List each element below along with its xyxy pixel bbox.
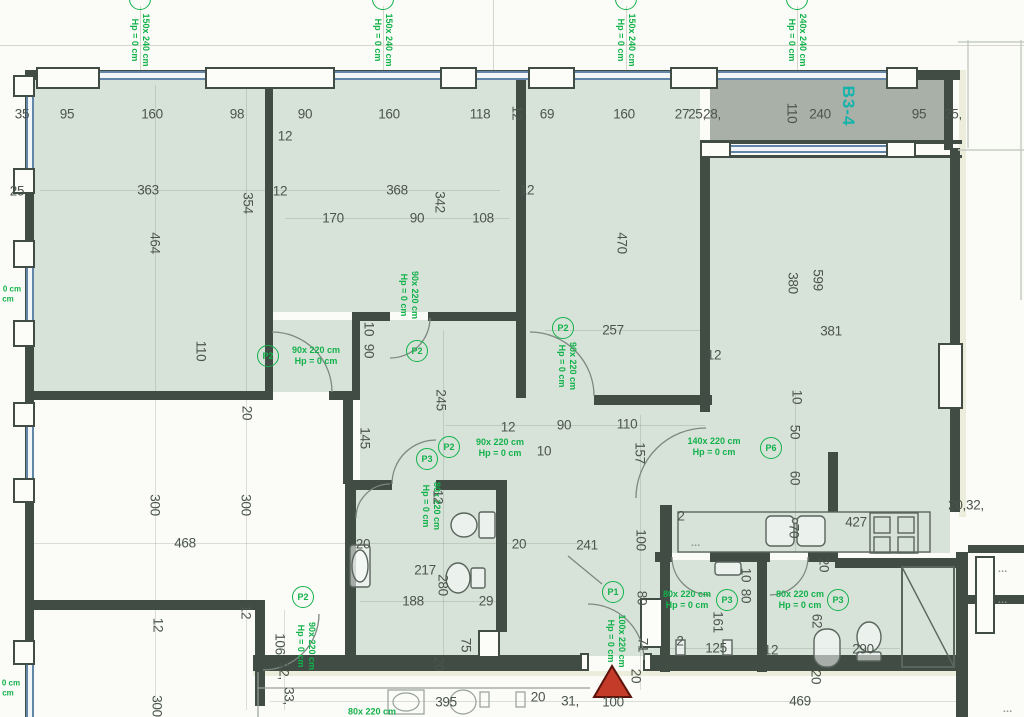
dimension-label: 118 [470,107,491,122]
door-label-circle: P2 [438,436,460,458]
dimension-label: 100 [602,695,624,710]
dimension-label: 12 [501,420,515,435]
dimension-label: 20 [809,670,824,684]
dimension-label: 20 [512,537,526,552]
wall-outer-band [959,70,966,517]
edge-window-label: cm [2,689,14,698]
dimension-label: 100 [634,529,649,551]
dimension-label: 10 [790,390,805,404]
hatch-mark: ▪▪▪ [998,600,1007,606]
dimension-label: 342 [433,191,448,213]
dimension-label: 12 [151,618,166,632]
dimension-label: 240 [809,107,831,122]
window-label: 150x 240 cmHp = 0 cm [615,13,637,66]
dimension-label: 2 [676,634,683,649]
dimension-label: 33, [282,687,297,705]
door-frame [580,653,589,671]
door-label-circle: P2 [257,345,279,367]
dimension-label: 27 [675,107,689,122]
dimension-label: 20 [531,690,545,705]
guide-line [493,0,494,70]
dimension-label: 12 [239,605,254,619]
room-fill-corridor [507,480,660,656]
window-sill [13,402,35,427]
wall-segment-neighbor-right-h1 [968,545,1024,553]
label-line: Hp = 0 cm [786,13,797,66]
door-label: 90x 220 cmHp = 0 cm [476,437,524,459]
label-line: Hp = 0 cm [615,13,626,66]
dimension-label: 20 [356,537,370,552]
edge-window-label: 0 cm [2,679,20,688]
window-label-circle [129,0,151,10]
window-sill [13,240,35,268]
window-sill [886,67,918,89]
door-label-circle: P6 [760,437,782,459]
dimension-label: 160 [613,107,635,122]
wall-segment-living-west [700,148,710,412]
dimension-label: 90 [557,418,571,433]
dimension-label: 170 [322,211,344,226]
label-line: Hp = 0 cm [420,482,431,530]
wall-segment-bottom-right [644,655,962,671]
label-line: 80x 220 cm [776,589,824,600]
door-label: 90x 220 cmHp = 0 cm [556,342,578,390]
dimension-label: 10 [362,322,377,336]
neighbor-sink-bowl [393,693,419,711]
dimension-label: 10 [739,568,754,582]
door-label: 90x 220 cmHp = 0 cm [398,271,420,319]
door-label: 80x 220 cmHp = 0 cm [663,589,711,611]
dimension-label: 161 [711,611,726,633]
window-glazing [26,427,34,478]
label-line: Hp = 0 cm [605,614,616,667]
label-line: 150x 240 cm [383,13,394,66]
door-frame [643,653,652,671]
window-sill [938,343,963,409]
dimension-label: 469 [789,694,811,709]
wall-segment-bath-east [496,480,507,632]
door-label-circle: P2 [292,586,314,608]
window-label: 240x 240 cmHp = 0 cm [786,13,808,66]
dimension-label: 31, [561,694,579,709]
window-sill [13,478,35,503]
dimension-label: 468 [174,536,196,551]
wall-segment-bedroom2-south-b [428,312,522,321]
dimension-label: 95 [60,107,74,122]
label-line: Hp = 0 cm [687,447,740,458]
dimension-label: 25, [944,107,962,122]
label-line: Hp = 0 cm [398,271,409,319]
dimension-label: 245 [434,389,449,411]
wall-segment-kitchen-divider [828,452,838,512]
dimension-label: 217 [414,563,436,578]
dimension-label: 160 [141,107,163,122]
window-glazing [731,145,886,153]
label-line: 100x 220 cm [616,614,627,667]
dimension-label: 80 [739,589,754,603]
wall-segment-terrace-south-bottom [700,155,962,158]
door-label-circle: P3 [416,448,438,470]
window-sill [670,67,718,89]
door-label: 140x 220 cmHp = 0 cm [687,436,740,458]
dimension-label: 90 [298,107,312,122]
guide-line [0,45,1024,46]
dimension-label: 290 [852,642,874,657]
window-sill [886,141,916,158]
label-line: 240x 240 cm [797,13,808,66]
label-line: 90x 220 cm [567,342,578,390]
dimension-label: 381 [820,324,842,339]
dimension-label: 12 [520,183,534,198]
dimension-label: 257 [602,323,624,338]
dimension-label: 157 [633,442,648,464]
dimension-label: 90 [410,211,424,226]
label-line: Hp = 0 cm [129,13,140,66]
wall-segment-hall-connector [352,312,360,400]
window-label-circle [786,0,808,10]
dimension-label: 363 [137,183,159,198]
dimension-label: 12 [707,348,721,363]
window-glazing [477,71,528,80]
dimension-label: 70 [787,524,802,538]
dimension-label: 25 [10,184,24,199]
dimension-label: 380 [786,272,801,294]
dimension-label: 62 [810,614,825,628]
neighbor-column [975,556,995,634]
dimension-label: 20 [629,669,644,683]
window-label-circle [615,0,637,10]
dimension-label: 12 [431,490,446,504]
dimension-label: 20 [240,406,255,420]
dimension-label: 35 [15,107,29,122]
label-line: 90x 220 cm [306,622,317,670]
dimension-label: 599 [811,269,826,291]
shaft-box [478,630,500,658]
dimension-label: 20 [432,657,447,671]
window-glazing [26,268,34,320]
window-sill [13,640,35,665]
edge-window-label: 0 cm [3,285,21,294]
dimension-label: 90 [362,344,377,358]
hatch-mark: ▪▪▪ [691,543,700,549]
door-label-circle: P1 [602,581,624,603]
dimension-label: 110 [785,103,800,124]
dimension-label: 60 [788,471,803,485]
dimension-label: 20 [817,558,832,572]
window-sill [440,67,477,89]
dimension-label: 69 [540,107,554,122]
window-glazing [26,665,34,717]
dimension-label: 300 [150,695,165,717]
door-label: 90x 220 cmHp = 0 cm [295,622,317,670]
wall-outer-band [253,671,962,676]
dimension-label: 98 [230,107,244,122]
dimension-label: 300 [148,494,163,516]
neighbor-door-frame [516,692,525,707]
dimension-label: 470 [615,232,630,254]
edge-window-label: cm [2,295,14,304]
dimension-label: 354 [241,192,256,214]
wall-segment-white-room-vert [255,610,265,706]
door-label-circle: P3 [716,589,738,611]
wall-segment-bedroom3-west [516,76,526,398]
label-line: Hp = 0 cm [292,356,340,367]
label-line: Hp = 0 cm [295,622,306,670]
label-line: 80x 220 cm [348,707,396,717]
wall-segment-bedroom1-south-a [25,391,268,400]
door-label: 80x 220 cm [348,707,396,717]
wall-segment-kitchen-west [660,505,672,557]
dimension-label: 241 [576,538,598,553]
dimension-label: 300 [239,494,254,516]
label-line: 140x 220 cm [687,436,740,447]
dimension-label: 12 [510,106,525,120]
door-label-circle: P2 [406,340,428,362]
window-label-circle [372,0,394,10]
wall-segment-bath-west [345,480,356,658]
wall-segment-shower-north [835,558,957,568]
dimension-label: 110 [617,417,638,432]
wall-segment-bedroom3-south [594,395,712,405]
neighbor-door-frame [480,692,489,707]
room-fill-bedroom3 [526,78,700,398]
label-line: Hp = 0 cm [476,448,524,459]
dimension-label: 160 [378,107,400,122]
hatch-mark: ▪▪▪ [1003,709,1012,715]
dimension-label: 29 [479,594,493,609]
label-line: Hp = 0 cm [776,600,824,611]
dimension-label: 106 [273,633,288,655]
window-sill [205,67,335,89]
window-sill [13,320,35,347]
dimension-label: 10 [537,444,551,459]
dimension-label: 145 [358,427,373,449]
leader-line [30,543,595,544]
dimension-label: 110 [194,341,209,362]
dimension-label: 108 [472,211,494,226]
dimension-label: 188 [402,594,424,609]
door-label: 80x 220 cmHp = 0 cm [776,589,824,611]
window-glazing [718,71,886,80]
wall-segment-terrace-south-top [700,140,962,144]
door-label-circle: P3 [827,589,849,611]
label-line: 150x 240 cm [140,13,151,66]
dimension-label: 80 [635,591,650,605]
label-line: 150x 240 cm [626,13,637,66]
dimension-label: 464 [148,232,163,254]
wall-segment-white-rooms-divider [28,600,265,610]
dimension-label: 12 [278,129,292,144]
door-label: 100x 220 cmHp = 0 cm [605,614,627,667]
label-line: 90x 220 cm [409,271,420,319]
window-label: 150x 240 cmHp = 0 cm [129,13,151,66]
room-fill-kitchen [660,512,950,553]
label-line: 80x 220 cm [663,589,711,600]
window-glazing [100,71,205,80]
dimension-label: 395 [435,695,457,710]
window-sill [13,75,35,97]
window-sill [36,67,100,89]
window-glazing [335,71,440,80]
dimension-label: 125 [705,641,727,656]
label-line: 90x 220 cm [476,437,524,448]
label-line: 90x 220 cm [292,345,340,356]
window-sill [528,67,575,89]
dimension-label: 12 [273,184,287,199]
dimension-label: 2 [677,509,684,524]
label-line: Hp = 0 cm [663,600,711,611]
dimension-label: 280 [436,574,451,596]
window-sill [700,141,731,158]
dimension-label: 12 [764,643,778,658]
hatch-mark: ▪▪▪ [998,569,1007,575]
dimension-label: 75 [459,638,474,652]
label-line: Hp = 0 cm [372,13,383,66]
wall-segment-white-room-east [343,396,353,484]
adjacent-unit-lines [958,40,1024,300]
dimension-label: 12, [277,662,292,680]
dimension-label: 50 [788,425,803,439]
unit-label: B3-4 [838,86,858,127]
wall-segment-neighbor-right-vert [956,552,968,717]
label-line: Hp = 0 cm [556,342,567,390]
door-label: 90x 220 cmHp = 0 cm [292,345,340,367]
window-label: 150x 240 cmHp = 0 cm [372,13,394,66]
leader-line [445,425,705,426]
dimension-label: 20,32, [948,498,984,513]
wall-segment-right [950,148,960,512]
floor-plan: B3-4 150x 240 cmHp = 0 cm150x 240 cmHp =… [0,0,1024,717]
door-label-circle: P2 [552,317,574,339]
dimension-label: 28, [703,107,721,122]
dimension-label: 95 [912,107,926,122]
dimension-label: 427 [845,515,867,530]
window-glazing [575,71,670,80]
dimension-label: 368 [386,183,408,198]
room-fill-hall-door-zone [516,398,594,482]
dimension-label: 71 [636,638,651,652]
